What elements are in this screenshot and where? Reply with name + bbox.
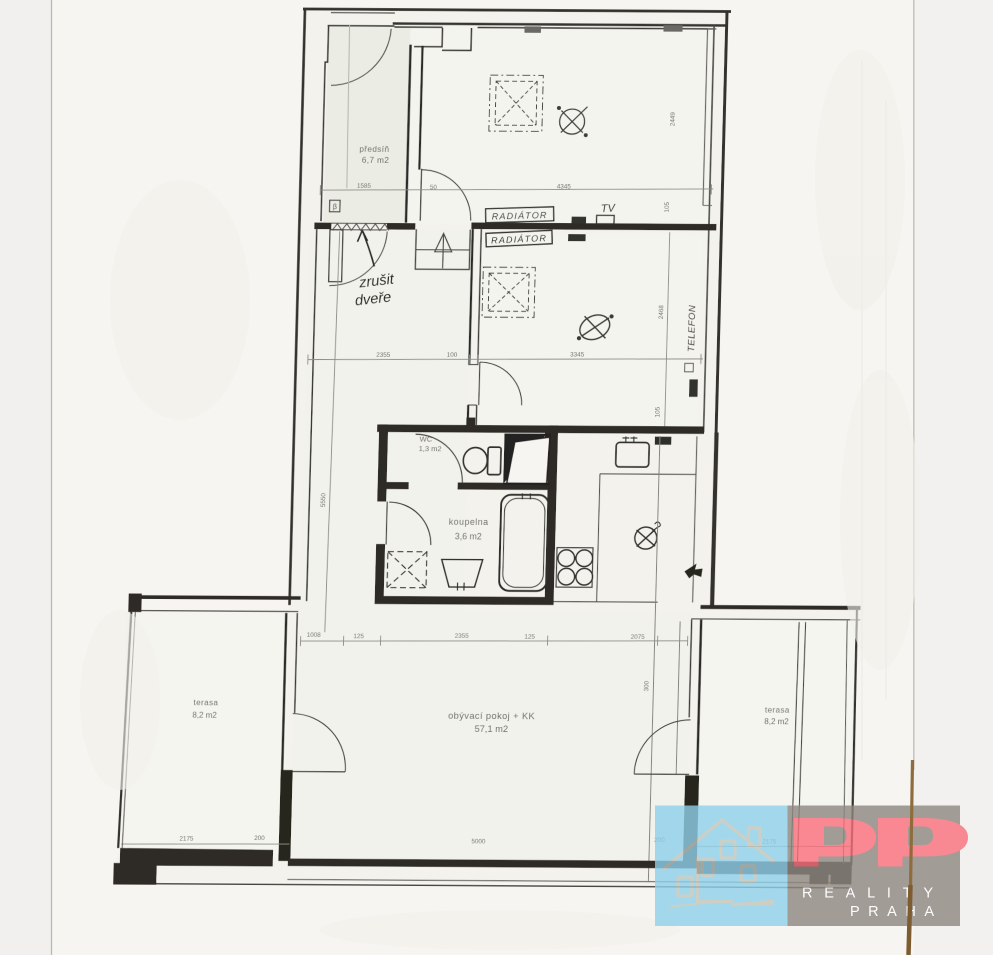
svg-text:1008: 1008: [307, 632, 322, 639]
svg-text:koupelna: koupelna: [449, 517, 489, 527]
svg-text:6,7 m2: 6,7 m2: [362, 156, 390, 165]
svg-text:5550: 5550: [320, 493, 327, 508]
svg-text:4345: 4345: [557, 184, 572, 191]
svg-text:předsíň: předsíň: [359, 145, 389, 154]
svg-text:57,1 m2: 57,1 m2: [474, 724, 508, 734]
svg-text:2468: 2468: [658, 305, 665, 320]
svg-text:125: 125: [353, 633, 364, 640]
svg-text:3345: 3345: [570, 352, 585, 359]
svg-text:8,2 m2: 8,2 m2: [764, 717, 789, 726]
svg-text:105: 105: [654, 406, 661, 417]
svg-text:2355: 2355: [376, 352, 391, 359]
svg-text:1585: 1585: [357, 183, 372, 190]
svg-text:125: 125: [524, 634, 535, 641]
svg-text:100: 100: [447, 352, 458, 359]
svg-text:TELEFON: TELEFON: [686, 305, 698, 352]
svg-text:terasa: terasa: [765, 706, 790, 715]
svg-text:terasa: terasa: [194, 698, 219, 707]
svg-text:5000: 5000: [471, 838, 486, 845]
svg-text:50: 50: [430, 184, 438, 191]
svg-text:β: β: [333, 204, 337, 211]
svg-text:RADIÁTOR: RADIÁTOR: [492, 210, 548, 222]
svg-text:3,6 m2: 3,6 m2: [455, 531, 482, 541]
svg-text:obývací pokoj + KK: obývací pokoj + KK: [448, 711, 536, 722]
svg-text:2175: 2175: [179, 835, 194, 842]
svg-text:105: 105: [664, 201, 671, 212]
svg-text:2355: 2355: [455, 633, 470, 640]
svg-text:PRAHA: PRAHA: [850, 904, 941, 920]
svg-text:TV: TV: [601, 202, 617, 215]
svg-text:2449: 2449: [670, 112, 677, 127]
svg-text:1,3 m2: 1,3 m2: [419, 444, 442, 453]
svg-text:2075: 2075: [631, 634, 646, 641]
svg-text:300: 300: [643, 680, 650, 691]
svg-text:200: 200: [254, 835, 265, 842]
svg-text:8,2 m2: 8,2 m2: [192, 711, 217, 720]
